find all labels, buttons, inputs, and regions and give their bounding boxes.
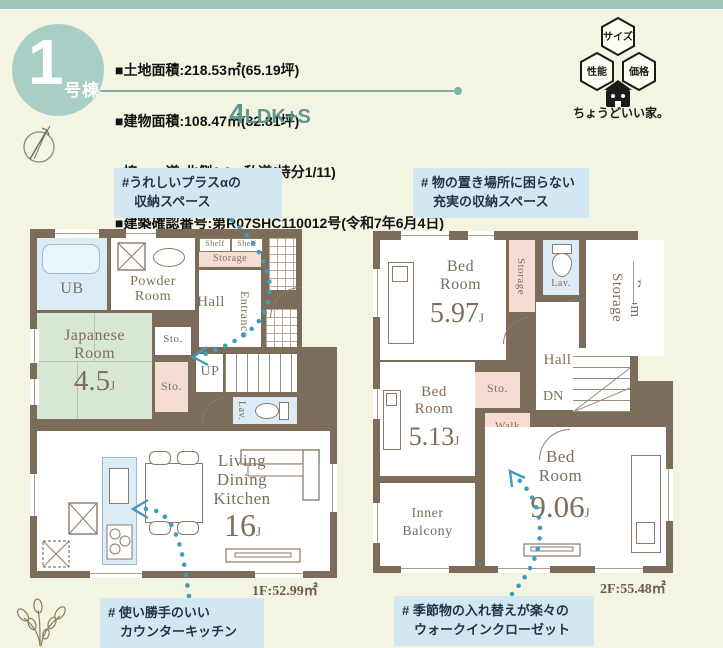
pillow-icon [636,522,655,544]
annotation-line: #うれしいプラスαの [122,174,274,193]
brand-logo: サイズ 性能 価格 ちょうどいい家。 [568,10,678,120]
room-sto-2f: Sto. [475,372,520,408]
room-sto-lower-1f: Sto. [155,362,188,412]
toilet-tank-icon [279,402,289,420]
window [595,564,643,573]
chair-icon [177,521,199,535]
room-powder-label: Powder Room [111,274,195,305]
annotation-wic: # 季節物の入れ替えが楽々の ウォークインクローゼット [394,596,594,646]
annotation-rich-storage: # 物の置き場所に困らない 充実の収納スペース [413,168,589,218]
window [401,231,449,240]
window [90,569,142,578]
powder-line2: Room [111,289,195,304]
building-number: 1 [28,25,64,99]
shelf-label: Shelf [232,239,262,248]
size-value: 5.97 [430,298,479,329]
chair-icon [177,451,199,465]
pillow-icon [386,393,397,406]
room-ub-label: UB [37,280,107,298]
pillow-icon [392,266,408,282]
annotation-line: カウンターキッチン [108,623,256,642]
window [664,469,673,521]
window [373,269,382,317]
room-japanese-size: 4.5J [37,365,152,398]
size-unit: J [479,310,484,325]
stove-icon [106,524,133,560]
size-unit: J [256,524,261,539]
hexagon-performance-label: 性能 [586,65,607,78]
room-storage-strip-2f: Storage [509,240,535,312]
room-bed2-size: 5.13J [394,422,474,452]
room-ldk: Living Dining Kitchen 16J [37,431,330,571]
room-sto-upper-1f: Sto. [155,327,191,355]
stairs-dn [573,348,630,412]
floor1-plan: UB Powder Room Shelf Shelf Storage Hall [30,229,337,578]
window [126,229,156,238]
room-ldk-size: 16J [205,507,280,544]
powder-line1: Powder [111,274,195,289]
room-powder: Powder Room [111,238,195,310]
room-lav-1f: Lav. [233,397,297,424]
size-unit: J [454,433,459,448]
brand-tagline: ちょうどいい家。 [556,104,686,121]
size-value: 16 [224,507,256,543]
window [55,229,99,238]
room-storage-1f: Storage [199,252,261,267]
up-label: UP [194,364,226,380]
window [30,329,39,363]
tv-board-icon [225,548,301,563]
chair-icon [149,451,171,465]
annotation-line: # 季節物の入れ替えが楽々の [402,602,586,621]
annotation-plus-storage: #うれしいプラスαの 収納スペース [114,168,282,218]
size-unit: J [110,378,115,393]
sto-label: Sto. [155,379,188,394]
window [373,389,382,419]
stairs-up-landing: UP [196,354,223,392]
annotation-counter-kitchen: # 使い勝手のいい カウンターキッチン [100,598,264,648]
bed-icon [388,262,414,344]
stairs-dn-lines [573,348,630,412]
hall-label: Hall [185,294,237,311]
room-bed3: Bed Room 9.06J [485,427,666,566]
room-bed1: Bed Room 5.97J [380,240,506,360]
floor2-area-label: 2F:55.48㎡ [600,578,666,598]
kitchen-counter [102,457,137,565]
shelf-left: Shelf [199,238,231,252]
compass-icon [16,118,62,166]
balcony-line2: Balcony [380,523,475,541]
room-bed1-label: Bed Room [418,258,503,293]
tv-board-icon [523,543,581,557]
hexagon-size-label: サイズ [603,30,633,43]
room-storage-room: Storage Room [586,240,664,356]
window [30,474,39,516]
dining-table-icon [145,463,203,523]
toilet-icon [255,403,279,419]
flyer-page: 1 号棟 ■土地面積:218.53㎡(65.19坪) ■建物面積:108.47㎡… [0,0,723,648]
japanese-line1: Japanese [37,327,152,345]
sto-label: Sto. [475,381,520,396]
room-inner-balcony: Inner Balcony [380,483,475,566]
sink-icon [153,248,185,267]
room-japanese: Japanese Room 4.5J [37,313,152,419]
window [328,464,337,512]
plan-type: 4LDK+S [175,98,365,130]
room-japanese-label: Japanese Room [37,327,152,362]
shelf-right: Shelf [231,238,263,252]
room-ldk-label: Living Dining Kitchen [197,451,287,508]
ldk-line2: Dining [197,470,287,489]
window [498,564,550,573]
size-value: 5.13 [409,422,455,451]
building-number-badge: 1 号棟 [12,24,104,116]
plant-sketch [10,592,72,648]
sto-label: Sto. [155,333,191,345]
japanese-line2: Room [37,345,152,363]
shelf-label: Shelf [200,239,230,248]
toilet-icon [552,253,572,277]
dn-label: DN [541,389,565,405]
header-divider-dot [454,87,462,95]
hexagon-price-label: 価格 [628,65,650,78]
cupboard-icon [42,540,70,568]
storage-room-line1: Storage [608,250,626,346]
entry-porch [269,238,296,290]
balcony-label: Inner Balcony [380,505,475,540]
plan-type-suffix: LDK+S [245,106,311,128]
annotation-line: # 使い勝手のいい [108,604,256,623]
size-value: 4.5 [74,365,110,397]
land-area-line: ■土地面積:218.53㎡(65.19坪) [115,62,444,79]
storage-strip-label: Storage [515,244,527,310]
room-bed2: Bed Room 5.13J [380,362,475,476]
bathtub-icon [42,244,100,274]
kitchen-sink-icon [109,468,129,504]
annotation-line: 充実の収納スペース [421,193,581,212]
ldk-line3: Kitchen [197,489,287,508]
chair-icon [149,521,171,535]
stairs-up [225,354,297,392]
window [373,503,382,543]
annotation-line: ウォークインクローゼット [402,621,586,640]
window [30,379,39,405]
room-bed1-size: 5.97J [412,298,502,330]
washer-icon [117,242,147,272]
bed-line2: Room [398,401,470,418]
window [255,569,303,578]
bed-icon [631,455,661,553]
room-hall-1f: Hall Entrance [199,270,261,347]
bed-line1: Bed [398,384,470,401]
entrance-label: Entrance [237,284,252,344]
bed-line1: Bed [418,258,503,276]
window [401,564,449,573]
size-value: 9.06 [530,489,584,524]
room-ub: UB [37,238,107,310]
floor2-plan: Bed Room 5.97J Storage Lav. Storage Room… [373,231,673,573]
size-unit: J [585,505,590,520]
top-accent-bar [0,0,723,9]
room-lav-2f: Lav. [543,240,579,295]
balcony-line1: Inner [380,505,475,523]
floor1-area-label: 1F:52.99㎡ [252,580,318,600]
bed-line2: Room [513,466,608,485]
room-bed2-label: Bed Room [398,384,470,417]
lav-label: Lav. [236,399,247,423]
ldk-line1: Living [197,451,287,470]
fridge-icon [68,502,98,535]
bed-line2: Room [418,276,503,294]
annotation-line: 収納スペース [122,193,274,212]
annotation-line: # 物の置き場所に困らない [421,174,581,193]
window [468,231,494,240]
lav-label: Lav. [543,278,579,289]
plan-type-number: 4 [229,98,245,129]
storage-label: Storage [199,253,261,264]
window [629,261,638,303]
room-bed3-size: 9.06J [505,489,615,525]
header-divider-line [100,90,460,92]
storage-room-label: Storage Room [608,250,644,346]
building-number-suffix: 号棟 [64,76,100,101]
